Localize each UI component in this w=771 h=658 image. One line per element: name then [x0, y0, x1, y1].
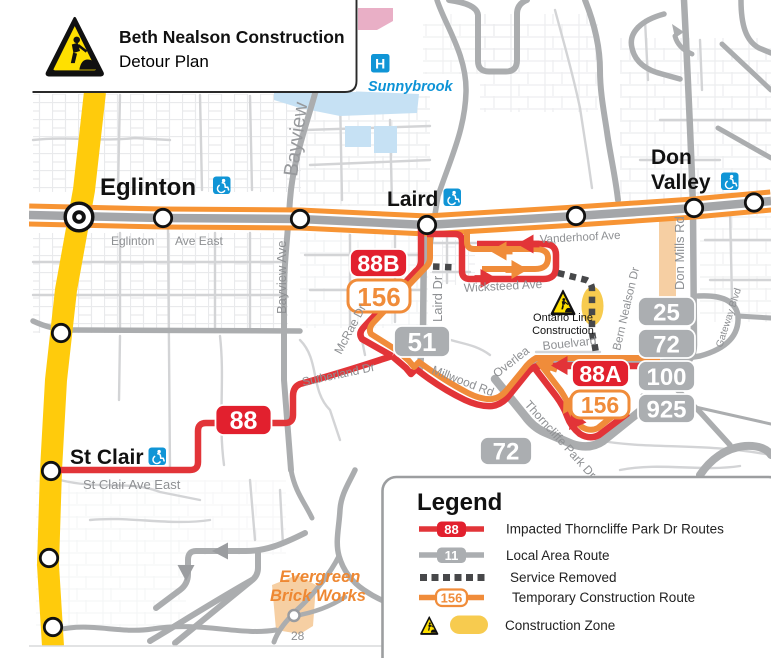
- svg-text:Ave East: Ave East: [175, 234, 223, 248]
- svg-text:88A: 88A: [579, 361, 621, 387]
- svg-text:156: 156: [441, 591, 463, 606]
- svg-text:Beth Nealson Construction: Beth Nealson Construction: [119, 27, 345, 47]
- svg-text:Impacted Thorncliffe Park Dr R: Impacted Thorncliffe Park Dr Routes: [506, 522, 724, 537]
- svg-text:St Clair: St Clair: [70, 446, 144, 469]
- svg-text:72: 72: [493, 439, 520, 466]
- svg-text:St Clair Ave East: St Clair Ave East: [83, 477, 181, 492]
- svg-text:28: 28: [291, 629, 305, 643]
- svg-text:Service Removed: Service Removed: [510, 570, 617, 585]
- svg-text:51: 51: [408, 327, 437, 357]
- svg-text:72: 72: [653, 332, 680, 359]
- svg-text:925: 925: [646, 397, 686, 424]
- svg-text:Local Area Route: Local Area Route: [506, 548, 610, 563]
- svg-text:88B: 88B: [357, 251, 399, 277]
- svg-text:Evergreen: Evergreen: [280, 568, 361, 586]
- svg-text:Detour Plan: Detour Plan: [119, 52, 209, 71]
- svg-text:Laird: Laird: [387, 188, 438, 211]
- svg-text:Sunnybrook: Sunnybrook: [368, 79, 454, 95]
- svg-text:Construction Zone: Construction Zone: [505, 618, 615, 633]
- svg-text:11: 11: [445, 548, 459, 563]
- svg-text:Brick Works: Brick Works: [270, 587, 366, 605]
- svg-text:88: 88: [230, 407, 258, 435]
- svg-text:Temporary Construction Route: Temporary Construction Route: [512, 590, 695, 605]
- svg-text:Ontario Line: Ontario Line: [533, 312, 593, 324]
- svg-text:Valley: Valley: [651, 171, 711, 194]
- svg-text:Laird Dr: Laird Dr: [430, 275, 445, 322]
- svg-text:88: 88: [444, 522, 458, 537]
- svg-text:Don: Don: [651, 146, 692, 169]
- svg-text:H: H: [375, 56, 385, 72]
- svg-text:Don Mills Rd: Don Mills Rd: [672, 216, 687, 290]
- svg-text:Eglinton: Eglinton: [111, 234, 154, 248]
- svg-text:25: 25: [653, 300, 680, 327]
- svg-text:Legend: Legend: [417, 489, 502, 516]
- svg-text:156: 156: [581, 392, 619, 418]
- svg-text:100: 100: [646, 364, 686, 391]
- svg-text:Eglinton: Eglinton: [100, 174, 196, 201]
- svg-text:Bayview Ave: Bayview Ave: [274, 241, 289, 314]
